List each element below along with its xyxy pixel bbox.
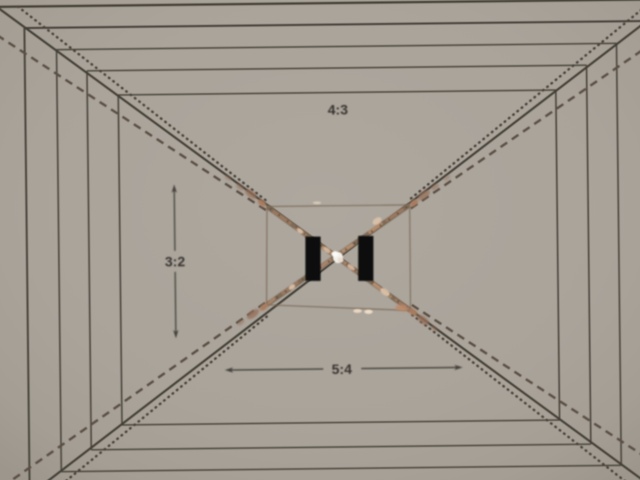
svg-text:4:3: 4:3 xyxy=(328,101,349,117)
svg-text:3:2: 3:2 xyxy=(165,253,186,269)
svg-text:5:4: 5:4 xyxy=(332,361,353,377)
